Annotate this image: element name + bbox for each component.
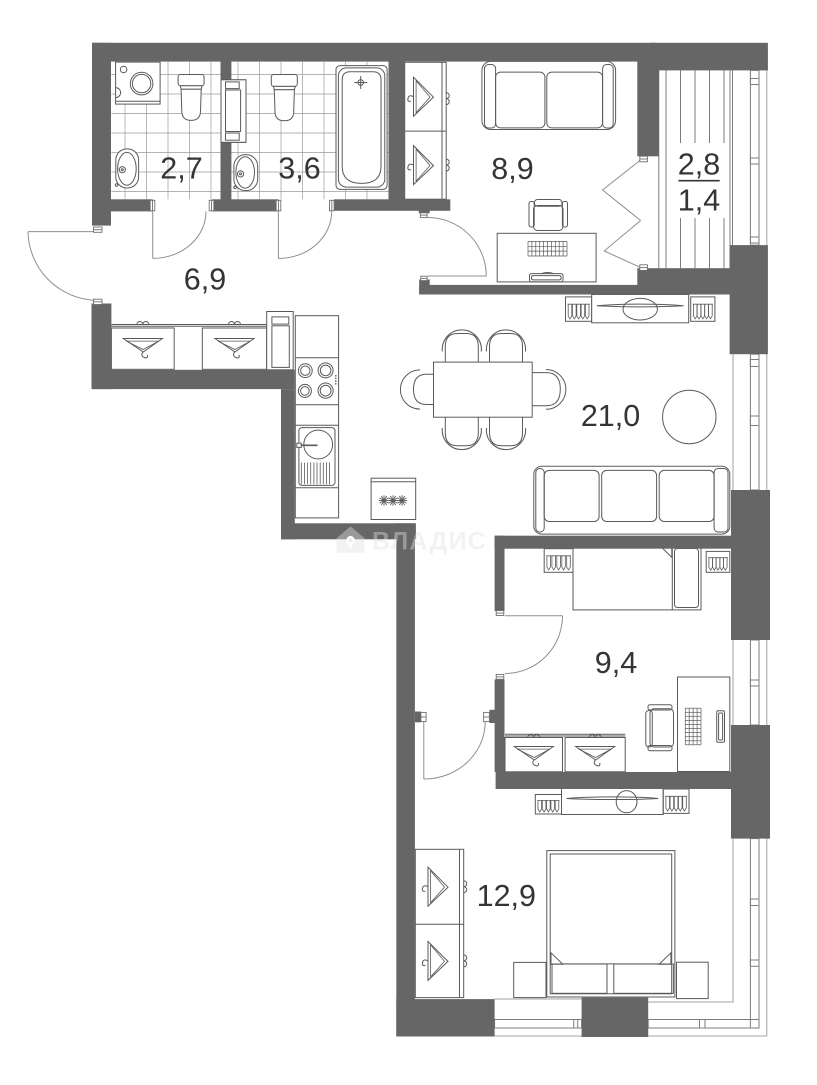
svg-text:6,9: 6,9 bbox=[184, 263, 226, 297]
svg-text:8,9: 8,9 bbox=[491, 152, 533, 186]
svg-text:12,9: 12,9 bbox=[477, 879, 536, 913]
svg-text:1,4: 1,4 bbox=[678, 184, 720, 218]
svg-text:ВЛАДИС: ВЛАДИС bbox=[372, 528, 487, 556]
svg-text:3,6: 3,6 bbox=[278, 152, 320, 186]
svg-text:9,4: 9,4 bbox=[595, 646, 637, 680]
svg-text:21,0: 21,0 bbox=[581, 399, 640, 433]
svg-text:2,7: 2,7 bbox=[160, 152, 202, 186]
svg-text:2,8: 2,8 bbox=[678, 148, 720, 182]
